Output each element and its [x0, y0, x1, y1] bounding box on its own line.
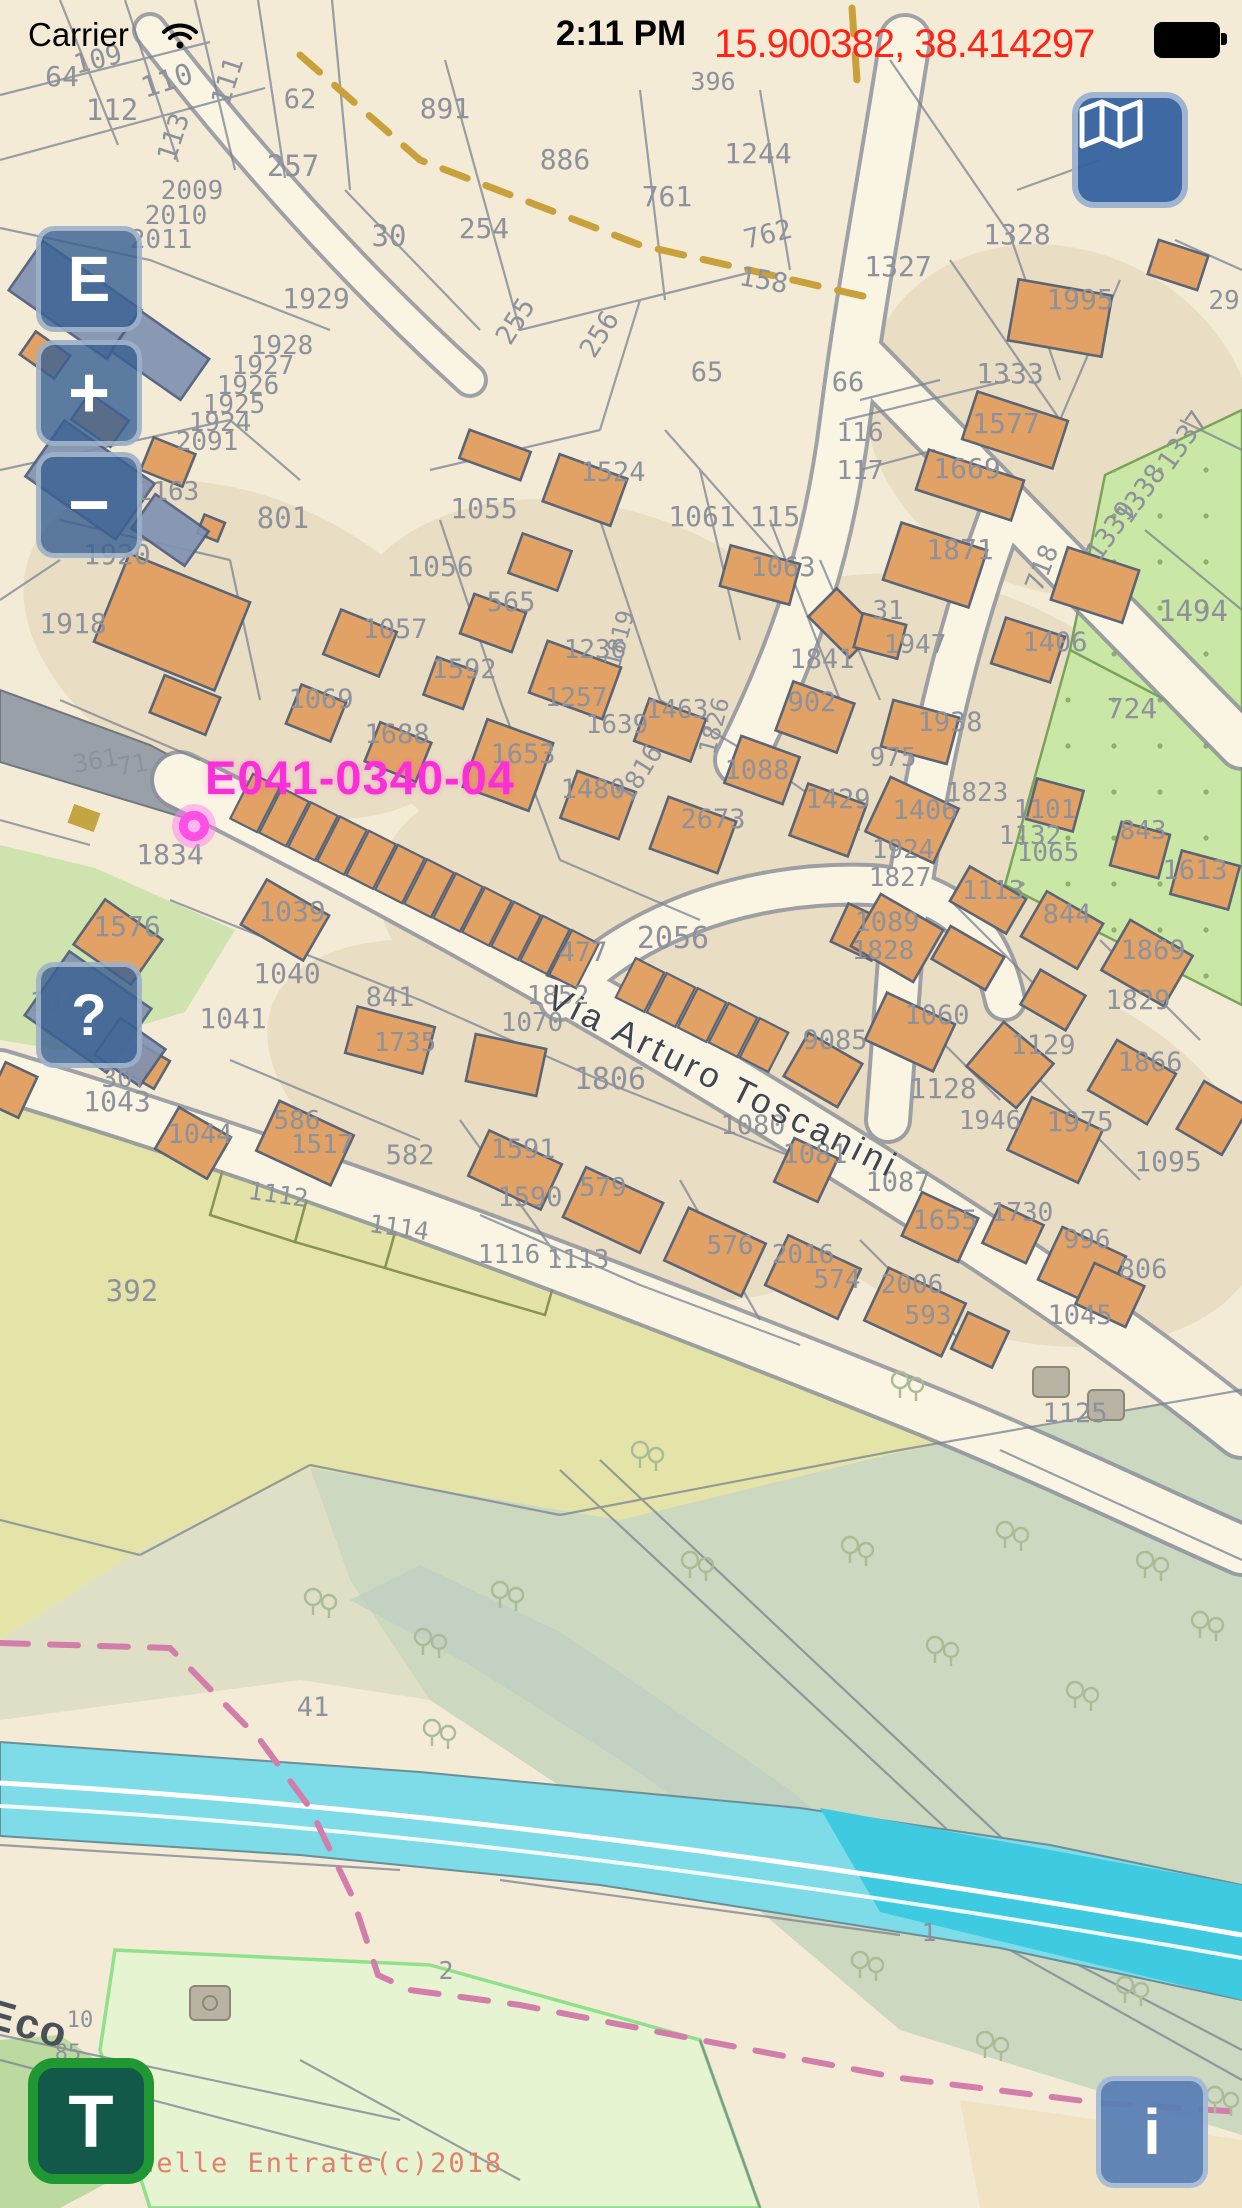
svg-text:1918: 1918 [39, 607, 106, 640]
svg-text:1517: 1517 [291, 1130, 354, 1160]
zoom-in-button[interactable]: + [36, 340, 142, 446]
svg-text:1128: 1128 [909, 1072, 976, 1105]
svg-text:1057: 1057 [362, 614, 427, 645]
carrier-label: Carrier [28, 16, 129, 54]
svg-text:761: 761 [642, 180, 693, 213]
svg-text:1129: 1129 [1010, 1030, 1075, 1061]
svg-text:1929: 1929 [282, 282, 349, 315]
svg-text:1669: 1669 [933, 452, 1000, 485]
svg-text:1125: 1125 [1042, 1398, 1107, 1429]
svg-text:1613: 1613 [1162, 855, 1227, 886]
svg-text:1592: 1592 [431, 654, 496, 685]
svg-text:396: 396 [690, 67, 735, 96]
map-style-button[interactable] [1072, 92, 1188, 208]
svg-text:1327: 1327 [864, 250, 931, 283]
svg-text:1806: 1806 [574, 1062, 646, 1097]
svg-text:1328: 1328 [983, 218, 1050, 251]
svg-text:579: 579 [580, 1173, 627, 1203]
svg-text:844: 844 [1043, 899, 1092, 930]
svg-text:1061: 1061 [668, 500, 735, 533]
svg-text:1871: 1871 [926, 533, 993, 566]
svg-text:1257: 1257 [545, 683, 608, 713]
svg-text:1938: 1938 [917, 707, 982, 738]
svg-text:1088: 1088 [724, 755, 789, 786]
svg-text:1095: 1095 [1134, 1145, 1201, 1178]
svg-text:582: 582 [386, 1140, 435, 1171]
svg-text:62: 62 [284, 84, 317, 115]
selected-parcel-code: E041-0340-04 [205, 750, 515, 805]
svg-text:116: 116 [837, 418, 884, 448]
gps-coordinates-readout: 15.900382, 38.414297 [714, 22, 1094, 67]
svg-text:975: 975 [870, 743, 917, 773]
battery-icon [1154, 22, 1220, 58]
svg-text:1869: 1869 [1120, 935, 1185, 966]
svg-text:65: 65 [691, 357, 724, 388]
svg-text:1946: 1946 [959, 1106, 1022, 1136]
svg-text:1828: 1828 [852, 936, 915, 966]
svg-text:724: 724 [1107, 692, 1158, 725]
zoom-out-button[interactable]: − [36, 452, 142, 558]
svg-text:257: 257 [267, 149, 319, 183]
svg-text:1116: 1116 [478, 1240, 541, 1270]
svg-text:30: 30 [372, 219, 407, 253]
svg-text:996: 996 [1064, 1225, 1111, 1255]
svg-text:1056: 1056 [406, 550, 473, 583]
svg-text:1063: 1063 [750, 552, 815, 583]
svg-text:1829: 1829 [1105, 985, 1170, 1016]
svg-text:2056: 2056 [637, 921, 709, 956]
svg-text:843: 843 [1120, 816, 1167, 846]
svg-text:2163: 2163 [137, 477, 200, 507]
svg-text:1730: 1730 [991, 1198, 1054, 1228]
svg-text:1045: 1045 [1047, 1300, 1112, 1331]
svg-text:1044: 1044 [167, 1119, 232, 1150]
svg-text:1576: 1576 [93, 910, 160, 943]
svg-text:1655: 1655 [912, 1205, 977, 1236]
svg-text:1494: 1494 [1158, 594, 1228, 628]
svg-text:1524: 1524 [580, 457, 645, 488]
svg-text:1827: 1827 [869, 863, 932, 893]
info-button[interactable]: i [1096, 2076, 1208, 2188]
svg-text:2091: 2091 [176, 427, 239, 457]
svg-text:1866: 1866 [1117, 1047, 1182, 1078]
edit-mode-button[interactable]: E [36, 226, 142, 332]
svg-text:307: 307 [102, 1064, 149, 1094]
svg-text:1591: 1591 [490, 1134, 555, 1165]
svg-text:1947: 1947 [884, 630, 947, 660]
svg-text:841: 841 [366, 982, 415, 1013]
help-button[interactable]: ? [36, 962, 142, 1068]
svg-text:477: 477 [559, 937, 608, 968]
svg-text:1841: 1841 [789, 644, 854, 675]
svg-text:1060: 1060 [904, 1000, 969, 1031]
svg-text:1975: 1975 [1046, 1105, 1113, 1138]
svg-text:117: 117 [837, 456, 884, 486]
svg-text:2006: 2006 [881, 1270, 944, 1300]
svg-text:2: 2 [438, 1956, 453, 1985]
svg-text:902: 902 [788, 687, 837, 718]
map-copyright: delle Entrate(c)2018 [138, 2148, 503, 2179]
tracking-button[interactable]: T [28, 2058, 154, 2184]
svg-text:1041: 1041 [199, 1002, 266, 1035]
svg-text:1735: 1735 [374, 1028, 437, 1058]
svg-text:115: 115 [750, 500, 801, 533]
svg-text:31: 31 [872, 596, 903, 626]
svg-text:1113: 1113 [547, 1245, 610, 1275]
svg-text:1463: 1463 [646, 695, 709, 725]
svg-text:71: 71 [115, 748, 150, 782]
svg-text:254: 254 [459, 212, 510, 245]
svg-text:66: 66 [832, 367, 865, 398]
svg-text:576: 576 [707, 1231, 754, 1261]
svg-text:1995: 1995 [1046, 283, 1113, 316]
svg-text:1406: 1406 [892, 795, 957, 826]
svg-text:886: 886 [540, 143, 591, 176]
svg-text:392: 392 [106, 1274, 158, 1308]
svg-text:1590: 1590 [497, 1182, 562, 1213]
svg-text:29: 29 [1208, 286, 1239, 316]
svg-text:1113: 1113 [962, 876, 1025, 906]
svg-text:1: 1 [921, 1918, 936, 1947]
parcel-marker-pin[interactable] [170, 802, 218, 850]
svg-text:1333: 1333 [976, 357, 1043, 390]
svg-text:1406: 1406 [1022, 627, 1087, 658]
svg-text:801: 801 [257, 501, 309, 535]
map-canvas[interactable]: 3966410911011111211362257308918861244761… [0, 0, 1242, 2208]
svg-text:2673: 2673 [680, 804, 745, 835]
svg-text:9085: 9085 [802, 1025, 867, 1056]
svg-text:2016: 2016 [772, 1240, 835, 1270]
svg-text:1069: 1069 [288, 684, 353, 715]
svg-text:1089: 1089 [854, 907, 919, 938]
svg-text:565: 565 [487, 587, 536, 618]
svg-text:1924: 1924 [872, 835, 935, 865]
app-screen: 3966410911011111211362257308918861244761… [0, 0, 1242, 2208]
svg-text:593: 593 [905, 1301, 952, 1331]
svg-text:1244: 1244 [724, 137, 791, 170]
svg-text:1429: 1429 [805, 784, 870, 815]
svg-text:1639: 1639 [586, 710, 649, 740]
svg-text:1055: 1055 [450, 492, 517, 525]
svg-text:112: 112 [86, 93, 138, 127]
svg-text:41: 41 [297, 1692, 330, 1723]
svg-text:1577: 1577 [972, 407, 1039, 440]
svg-text:1039: 1039 [258, 895, 325, 928]
clock-time: 2:11 PM [556, 14, 686, 54]
svg-text:1688: 1688 [364, 719, 429, 750]
svg-text:1040: 1040 [253, 957, 320, 990]
svg-text:891: 891 [420, 92, 471, 125]
svg-text:1065: 1065 [1017, 838, 1080, 868]
svg-text:806: 806 [1119, 1254, 1168, 1285]
